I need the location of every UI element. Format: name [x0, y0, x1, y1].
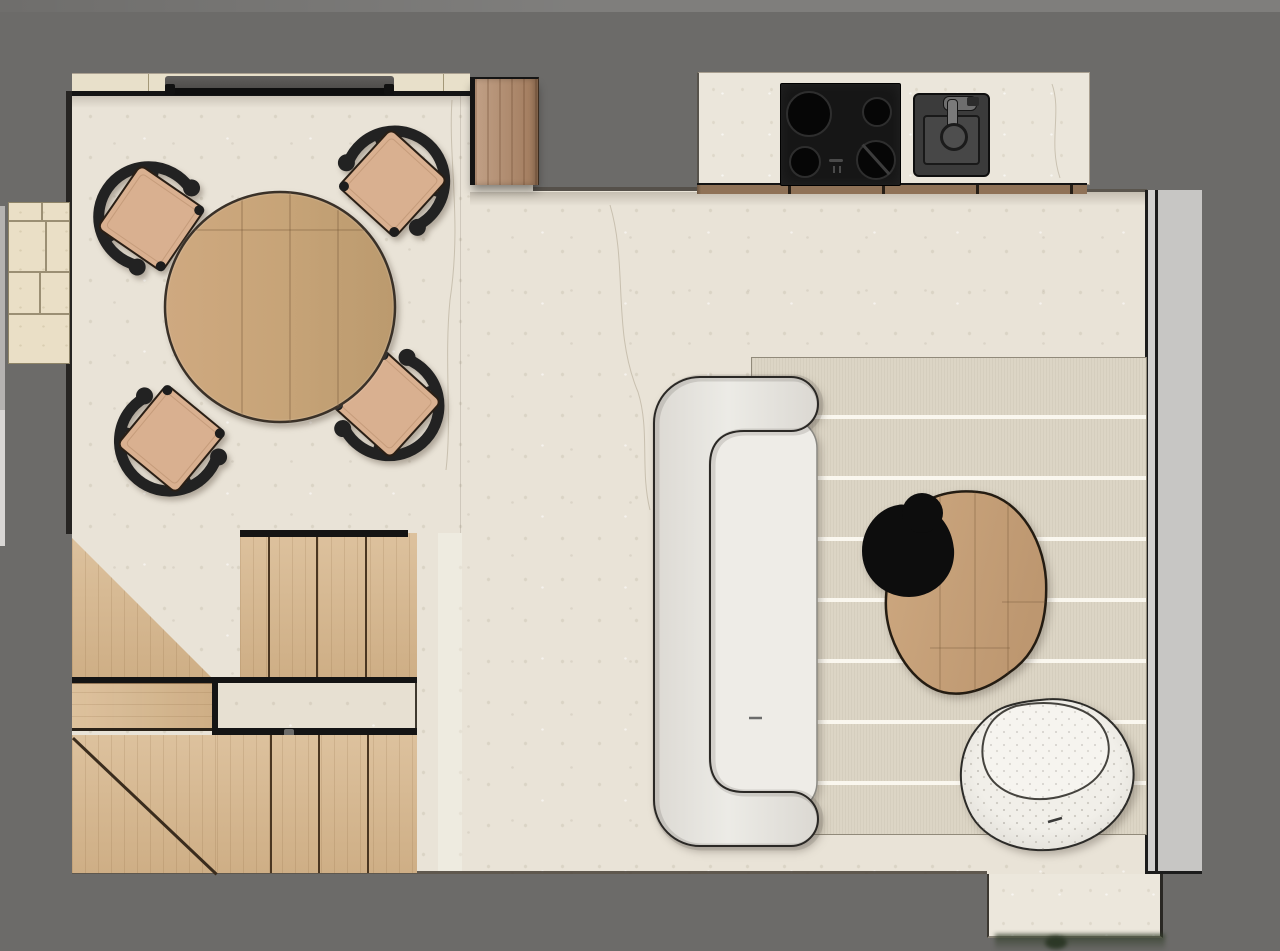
dining-set — [76, 106, 471, 516]
furniture-layer — [0, 0, 1280, 951]
floor-plan — [0, 0, 1280, 951]
armchair — [961, 699, 1134, 850]
coffee-table-group — [862, 490, 1046, 700]
sofa — [654, 377, 820, 847]
top-light-band — [0, 0, 1280, 12]
